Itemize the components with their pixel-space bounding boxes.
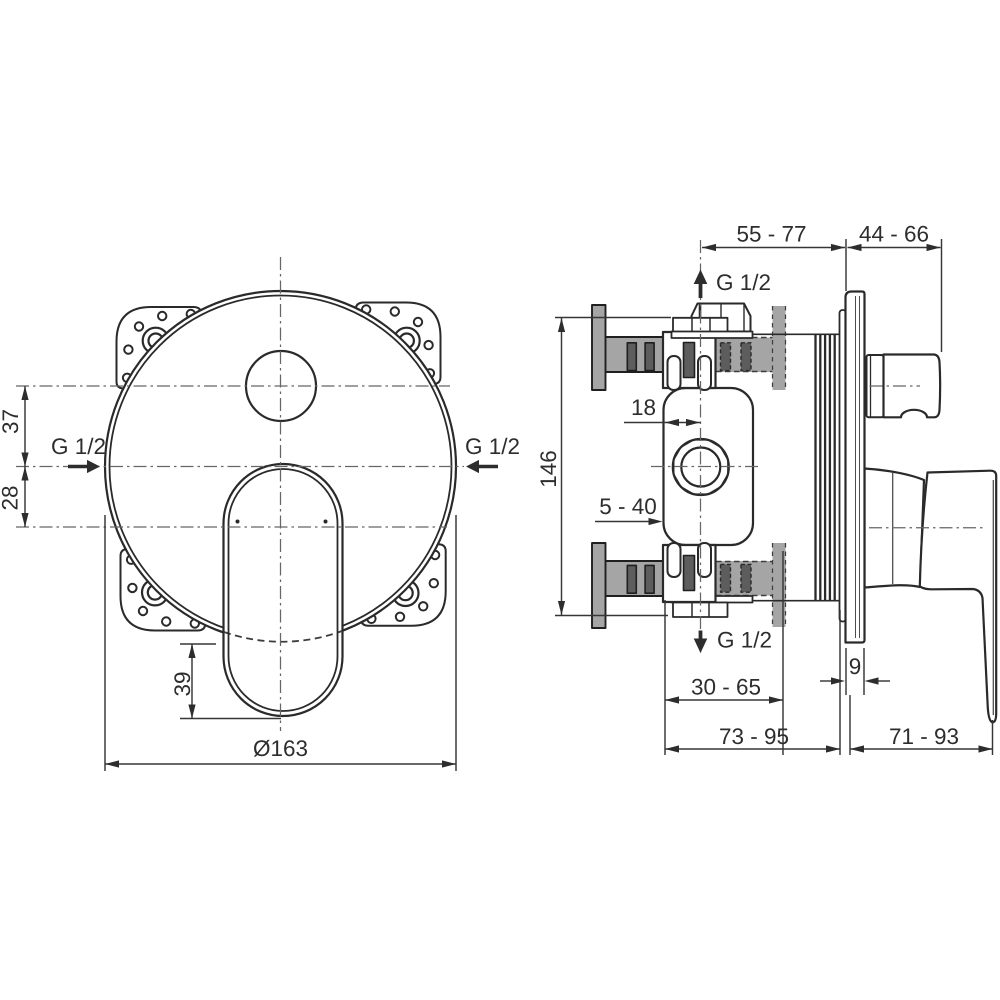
svg-text:18: 18: [631, 395, 656, 420]
svg-text:146: 146: [536, 450, 561, 488]
svg-text:30 - 65: 30 - 65: [691, 675, 761, 700]
svg-text:71 - 93: 71 - 93: [889, 724, 959, 749]
svg-text:73 - 95: 73 - 95: [719, 724, 789, 749]
svg-text:G 1/2: G 1/2: [716, 270, 771, 295]
svg-text:28: 28: [0, 485, 23, 510]
svg-text:G 1/2: G 1/2: [717, 628, 772, 653]
svg-text:9: 9: [849, 654, 862, 679]
svg-text:44 - 66: 44 - 66: [859, 222, 929, 247]
svg-text:G 1/2: G 1/2: [465, 434, 520, 459]
svg-text:37: 37: [0, 409, 23, 434]
svg-text:Ø163: Ø163: [253, 736, 308, 761]
svg-text:39: 39: [170, 671, 195, 696]
svg-text:55 - 77: 55 - 77: [736, 222, 806, 247]
svg-text:5 - 40: 5 - 40: [599, 494, 657, 519]
svg-text:G 1/2: G 1/2: [51, 434, 106, 459]
